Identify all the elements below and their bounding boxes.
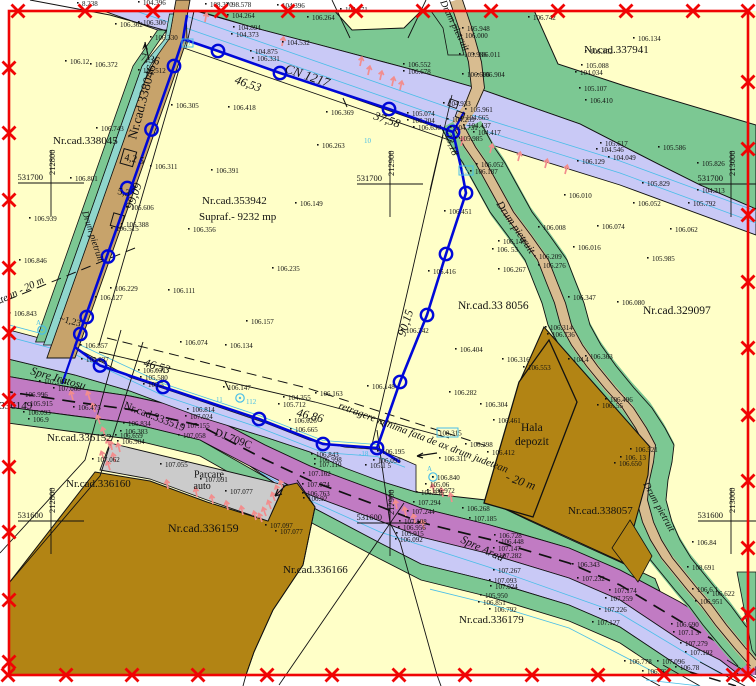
svg-text:107.155: 107.155 bbox=[187, 422, 210, 430]
svg-text:104.034: 104.034 bbox=[580, 69, 603, 77]
svg-text:106.187: 106.187 bbox=[475, 168, 498, 176]
svg-text:106.300: 106.300 bbox=[143, 19, 166, 27]
svg-text:531600: 531600 bbox=[357, 512, 383, 522]
svg-text:106.092: 106.092 bbox=[400, 536, 423, 544]
svg-text:107.232: 107.232 bbox=[582, 575, 605, 583]
svg-text:Supraf.- 9232 mp: Supraf.- 9232 mp bbox=[199, 211, 277, 223]
svg-text:104.4: 104.4 bbox=[573, 356, 589, 364]
svg-text:Nr.cad.338057: Nr.cad.338057 bbox=[568, 505, 633, 517]
svg-text:106.84: 106.84 bbox=[697, 539, 717, 547]
svg-text:106.650: 106.650 bbox=[619, 460, 642, 468]
svg-text:Nr.cad.353942: Nr.cad.353942 bbox=[202, 195, 267, 207]
svg-text:106.690: 106.690 bbox=[676, 621, 699, 629]
svg-text:106.391: 106.391 bbox=[216, 167, 239, 175]
svg-text:105.826: 105.826 bbox=[702, 160, 725, 168]
svg-text:105.792: 105.792 bbox=[693, 200, 716, 208]
svg-text:107.024: 107.024 bbox=[190, 413, 213, 421]
svg-text:104.731: 104.731 bbox=[455, 124, 478, 132]
svg-text:106.404: 106.404 bbox=[460, 346, 483, 354]
svg-text:106.008: 106.008 bbox=[543, 224, 566, 232]
svg-text:106.461: 106.461 bbox=[498, 417, 521, 425]
svg-text:213000: 213000 bbox=[727, 151, 737, 177]
svg-text:106.000: 106.000 bbox=[465, 32, 488, 40]
svg-text:Nr.cad.336179: Nr.cad.336179 bbox=[459, 614, 524, 626]
svg-text:104.313: 104.313 bbox=[702, 187, 725, 195]
svg-text:106.052: 106.052 bbox=[638, 200, 661, 208]
svg-text:106.195: 106.195 bbox=[382, 448, 405, 456]
svg-text:105.107: 105.107 bbox=[584, 85, 607, 93]
svg-text:107.282: 107.282 bbox=[499, 552, 522, 560]
svg-text:105.1 5: 105.1 5 bbox=[370, 462, 392, 470]
svg-text:106.606: 106.606 bbox=[131, 204, 154, 212]
svg-text:106.129: 106.129 bbox=[582, 158, 605, 166]
svg-text:531700: 531700 bbox=[357, 173, 383, 183]
svg-text:107.077: 107.077 bbox=[280, 528, 303, 536]
svg-text:104.546: 104.546 bbox=[601, 146, 624, 154]
svg-text:106.134: 106.134 bbox=[230, 342, 253, 350]
svg-text:106.331: 106.331 bbox=[257, 55, 280, 63]
svg-text:-18: -18 bbox=[359, 450, 369, 458]
svg-text:106.951: 106.951 bbox=[700, 598, 723, 606]
svg-text:104.049: 104.049 bbox=[613, 154, 636, 162]
svg-text:105.5: 105.5 bbox=[148, 381, 164, 389]
svg-text:106.78: 106.78 bbox=[680, 664, 700, 672]
svg-text:107.226: 107.226 bbox=[604, 606, 627, 614]
svg-text:108.315: 108.315 bbox=[439, 430, 462, 438]
svg-text:106.363: 106.363 bbox=[590, 353, 613, 361]
svg-text:depozit: depozit bbox=[515, 436, 550, 448]
svg-text:106.062: 106.062 bbox=[675, 226, 698, 234]
svg-text:A: A bbox=[36, 319, 41, 327]
svg-text:106.678: 106.678 bbox=[408, 68, 431, 76]
svg-text:106.736: 106.736 bbox=[552, 331, 575, 339]
svg-text:106.163: 106.163 bbox=[320, 390, 343, 398]
svg-text:106.235: 106.235 bbox=[277, 265, 300, 273]
svg-text:106.316: 106.316 bbox=[507, 356, 530, 364]
svg-text:107.279: 107.279 bbox=[685, 640, 708, 648]
svg-text:106.343: 106.343 bbox=[577, 561, 600, 569]
svg-text:106.267: 106.267 bbox=[503, 266, 526, 274]
svg-text:106.92: 106.92 bbox=[308, 495, 328, 503]
svg-text:107.294: 107.294 bbox=[418, 499, 441, 507]
svg-text:104.933: 104.933 bbox=[448, 100, 471, 108]
svg-text:Nr.cad.336166: Nr.cad.336166 bbox=[283, 564, 348, 576]
svg-text:106.418: 106.418 bbox=[233, 104, 256, 112]
svg-text:213000: 213000 bbox=[727, 488, 737, 514]
svg-text:212800: 212800 bbox=[47, 150, 57, 176]
svg-text:106.311: 106.311 bbox=[444, 455, 467, 463]
svg-text:Hala: Hala bbox=[521, 422, 543, 434]
svg-text:106.074: 106.074 bbox=[602, 223, 625, 231]
svg-text:106.743: 106.743 bbox=[101, 125, 124, 133]
svg-text:106.026: 106.026 bbox=[294, 417, 317, 425]
svg-text:212800: 212800 bbox=[47, 488, 57, 514]
svg-text:13: 13 bbox=[183, 40, 191, 48]
svg-text:106.636: 106.636 bbox=[418, 124, 441, 132]
svg-text:107.244: 107.244 bbox=[412, 508, 435, 516]
svg-text:10: 10 bbox=[364, 137, 372, 145]
svg-text:106.147: 106.147 bbox=[228, 384, 251, 392]
svg-text:106.011: 106.011 bbox=[478, 51, 501, 59]
svg-text:13: 13 bbox=[461, 168, 469, 176]
svg-text:107.174: 107.174 bbox=[614, 587, 637, 595]
svg-text:107.162: 107.162 bbox=[308, 470, 331, 478]
svg-text:106.127: 106.127 bbox=[100, 294, 123, 302]
svg-text:106.843: 106.843 bbox=[14, 310, 37, 318]
svg-text:531600: 531600 bbox=[18, 510, 44, 520]
svg-text:107.185: 107.185 bbox=[474, 515, 497, 523]
svg-text:106.264: 106.264 bbox=[312, 14, 335, 22]
svg-text:106.369: 106.369 bbox=[331, 109, 354, 117]
svg-text:Nr.cad.338045: Nr.cad.338045 bbox=[53, 135, 118, 147]
svg-text:Nr.cad.33 8056: Nr.cad.33 8056 bbox=[458, 300, 529, 312]
svg-text:105.829: 105.829 bbox=[647, 180, 670, 188]
svg-text:106.857: 106.857 bbox=[85, 342, 108, 350]
svg-text:106.412: 106.412 bbox=[492, 449, 515, 457]
svg-text:106.939: 106.939 bbox=[34, 215, 57, 223]
svg-text:106. 53: 106. 53 bbox=[497, 246, 519, 254]
svg-text:106.904: 106.904 bbox=[482, 71, 505, 79]
svg-text:107.055: 107.055 bbox=[165, 461, 188, 469]
svg-text:106.9: 106.9 bbox=[33, 416, 49, 424]
svg-text:106.936: 106.936 bbox=[421, 489, 444, 497]
svg-text:107.062: 107.062 bbox=[97, 456, 120, 464]
svg-text:106.475: 106.475 bbox=[78, 404, 101, 412]
svg-text:106.410: 106.410 bbox=[590, 97, 613, 105]
svg-text:106.362: 106.362 bbox=[120, 21, 143, 29]
svg-text:108.370: 108.370 bbox=[210, 1, 233, 9]
svg-text:105.915: 105.915 bbox=[30, 400, 53, 408]
svg-text:107.1 3: 107.1 3 bbox=[678, 629, 700, 637]
svg-text:531600: 531600 bbox=[698, 510, 724, 520]
svg-text:106.010: 106.010 bbox=[569, 192, 592, 200]
svg-text:106.242: 106.242 bbox=[406, 327, 429, 335]
svg-text:106.515: 106.515 bbox=[116, 225, 139, 233]
svg-text:106.356: 106.356 bbox=[193, 226, 216, 234]
svg-text:106.416: 106.416 bbox=[433, 268, 456, 276]
svg-text:105.985: 105.985 bbox=[460, 135, 483, 143]
svg-text:Nr.cad.336160: Nr.cad.336160 bbox=[66, 478, 131, 490]
svg-text:106.263: 106.263 bbox=[322, 142, 345, 150]
svg-text:106. 55: 106. 55 bbox=[602, 402, 624, 410]
svg-text:106.268: 106.268 bbox=[467, 505, 490, 513]
svg-text:107.068: 107.068 bbox=[58, 385, 81, 393]
svg-text:106.553: 106.553 bbox=[528, 364, 551, 372]
svg-text:108.691: 108.691 bbox=[692, 564, 715, 572]
svg-text:104.373: 104.373 bbox=[236, 31, 259, 39]
svg-text:106.801: 106.801 bbox=[75, 175, 98, 183]
svg-text:106.149: 106.149 bbox=[300, 200, 323, 208]
svg-text:106.111: 106.111 bbox=[173, 287, 196, 295]
svg-text:105.837: 105.837 bbox=[86, 356, 109, 364]
svg-text:106.311: 106.311 bbox=[155, 163, 178, 171]
svg-text:106.451: 106.451 bbox=[449, 208, 472, 216]
svg-text:106.352: 106.352 bbox=[590, 48, 613, 56]
svg-text:A: A bbox=[427, 465, 432, 473]
svg-text:106.298: 106.298 bbox=[470, 441, 493, 449]
svg-text:107.110: 107.110 bbox=[319, 461, 342, 469]
svg-text:105.985: 105.985 bbox=[652, 255, 675, 263]
svg-text:107.192: 107.192 bbox=[690, 649, 713, 657]
svg-text:105.961: 105.961 bbox=[470, 106, 493, 114]
svg-text:112: 112 bbox=[246, 398, 257, 406]
svg-text:106.140: 106.140 bbox=[503, 238, 526, 246]
svg-text:212900: 212900 bbox=[386, 151, 396, 177]
svg-text:106.347: 106.347 bbox=[573, 294, 596, 302]
svg-text:Nr.cad.329097: Nr.cad.329097 bbox=[643, 305, 711, 317]
svg-text:106.229: 106.229 bbox=[115, 285, 138, 293]
svg-text:106.846: 106.846 bbox=[24, 257, 47, 265]
svg-text:106.834: 106.834 bbox=[128, 420, 151, 428]
svg-text:106.304: 106.304 bbox=[485, 401, 508, 409]
svg-text:105.712: 105.712 bbox=[283, 401, 306, 409]
svg-text:104.264: 104.264 bbox=[232, 12, 255, 20]
svg-text:11: 11 bbox=[216, 396, 223, 404]
svg-text:106.305: 106.305 bbox=[176, 102, 199, 110]
svg-text:106.996: 106.996 bbox=[25, 391, 48, 399]
svg-text:106.792: 106.792 bbox=[494, 606, 517, 614]
svg-text:106.276: 106.276 bbox=[543, 262, 566, 270]
svg-text:106.12: 106.12 bbox=[70, 58, 90, 66]
svg-text:107.091: 107.091 bbox=[205, 476, 228, 484]
svg-text:106.157: 106.157 bbox=[251, 318, 274, 326]
svg-text:107.074: 107.074 bbox=[307, 481, 330, 489]
svg-text:107.127: 107.127 bbox=[597, 619, 620, 627]
svg-text:106.016: 106.016 bbox=[578, 244, 601, 252]
svg-text:106.372: 106.372 bbox=[95, 61, 118, 69]
svg-text:106.665: 106.665 bbox=[295, 426, 318, 434]
svg-text:106.512: 106.512 bbox=[143, 67, 166, 75]
svg-text:106.074: 106.074 bbox=[185, 339, 208, 347]
svg-text:106.134: 106.134 bbox=[638, 35, 661, 43]
svg-text:106.904: 106.904 bbox=[122, 438, 145, 446]
svg-text:104.532: 104.532 bbox=[287, 39, 310, 47]
svg-text:107.259: 107.259 bbox=[610, 595, 633, 603]
svg-text:106.622: 106.622 bbox=[712, 590, 735, 598]
svg-text:105.586: 105.586 bbox=[663, 144, 686, 152]
svg-text:106.080: 106.080 bbox=[622, 299, 645, 307]
svg-text:107.077: 107.077 bbox=[230, 488, 253, 496]
svg-text:107.267: 107.267 bbox=[498, 567, 521, 575]
svg-text:107.058: 107.058 bbox=[183, 432, 206, 440]
svg-text:106.148: 106.148 bbox=[372, 383, 395, 391]
svg-text:531700: 531700 bbox=[698, 173, 724, 183]
svg-text:Nr.cad.336152: Nr.cad.336152 bbox=[47, 432, 112, 444]
svg-text:107.024: 107.024 bbox=[495, 583, 518, 591]
svg-text:531700: 531700 bbox=[18, 172, 44, 182]
svg-text:106.209: 106.209 bbox=[539, 253, 562, 261]
svg-text:106.330: 106.330 bbox=[155, 34, 178, 42]
svg-text:106.521: 106.521 bbox=[635, 446, 658, 454]
svg-text:106.282: 106.282 bbox=[454, 389, 477, 397]
svg-text:98.578: 98.578 bbox=[232, 1, 252, 9]
svg-text:106.778: 106.778 bbox=[629, 658, 652, 666]
svg-text:Nr.cad.336159: Nr.cad.336159 bbox=[168, 521, 239, 535]
